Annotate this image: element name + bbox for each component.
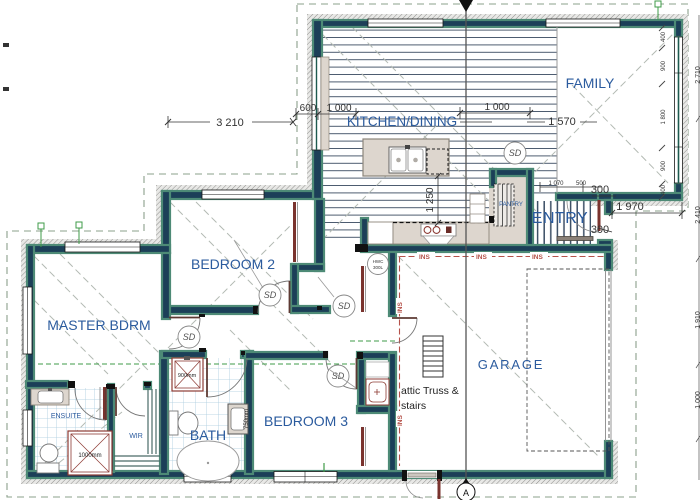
svg-text:750mm: 750mm <box>244 409 250 429</box>
svg-text:300: 300 <box>591 224 609 236</box>
svg-text:3 210: 3 210 <box>216 117 244 129</box>
svg-text:900mm: 900mm <box>178 373 197 379</box>
svg-text:1 250: 1 250 <box>425 187 436 212</box>
svg-text:INS: INS <box>397 415 404 427</box>
svg-text:300: 300 <box>591 184 609 196</box>
svg-text:INS: INS <box>397 302 404 314</box>
svg-text:1 070: 1 070 <box>548 181 564 187</box>
svg-text:SD: SD <box>338 301 351 311</box>
svg-text:INS: INS <box>532 254 544 261</box>
svg-text:600: 600 <box>300 103 317 114</box>
svg-text:500: 500 <box>576 181 587 187</box>
svg-text:BATH: BATH <box>190 427 226 443</box>
svg-text:FAMILY: FAMILY <box>566 75 615 91</box>
svg-text:MASTER BDRM: MASTER BDRM <box>47 317 150 333</box>
svg-text:SD: SD <box>183 332 196 342</box>
svg-text:900: 900 <box>661 160 667 171</box>
svg-text:300L: 300L <box>373 265 384 270</box>
svg-text:BEDROOM 3: BEDROOM 3 <box>264 413 348 429</box>
svg-text:SD: SD <box>509 148 522 158</box>
svg-text:900: 900 <box>661 60 667 71</box>
svg-text:INS: INS <box>419 254 431 261</box>
svg-text:1 970: 1 970 <box>616 201 644 213</box>
svg-text:400: 400 <box>661 184 667 195</box>
svg-text:PANTRY: PANTRY <box>499 202 523 208</box>
svg-text:1 570: 1 570 <box>548 116 576 128</box>
svg-text:KITCHEN/DINING: KITCHEN/DINING <box>347 114 457 129</box>
svg-text:1000mm: 1000mm <box>78 453 101 459</box>
svg-text:1 800: 1 800 <box>661 109 667 125</box>
svg-text:1 000: 1 000 <box>484 102 509 113</box>
svg-text:INS: INS <box>476 254 488 261</box>
svg-text:ENSUITE: ENSUITE <box>51 413 82 420</box>
svg-text:BEDROOM 2: BEDROOM 2 <box>191 256 275 272</box>
svg-text:stairs: stairs <box>401 400 426 412</box>
svg-text:HWC: HWC <box>373 259 384 264</box>
svg-text:GARAGE: GARAGE <box>478 357 544 372</box>
svg-text:attic Truss &: attic Truss & <box>401 385 459 397</box>
svg-text:ENTRY: ENTRY <box>532 210 588 227</box>
svg-text:SD: SD <box>264 290 277 300</box>
svg-text:A: A <box>463 488 469 498</box>
svg-text:1 000: 1 000 <box>326 103 351 114</box>
svg-text:WIR: WIR <box>129 433 143 440</box>
svg-text:400: 400 <box>661 31 667 42</box>
